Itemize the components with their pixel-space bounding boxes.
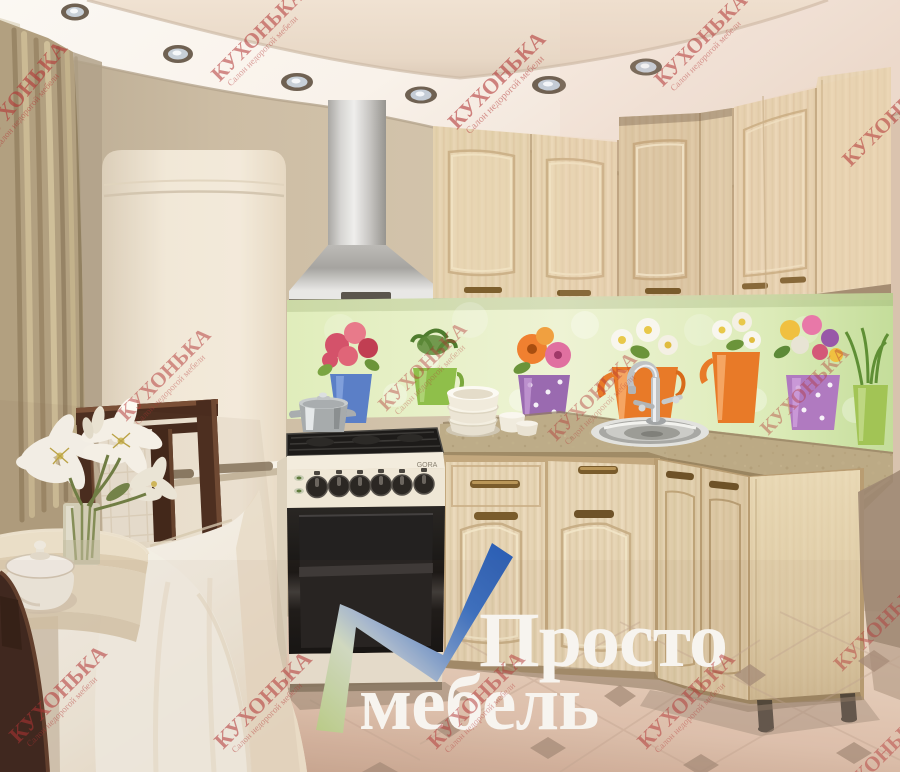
svg-text:GORA: GORA [417, 462, 438, 469]
